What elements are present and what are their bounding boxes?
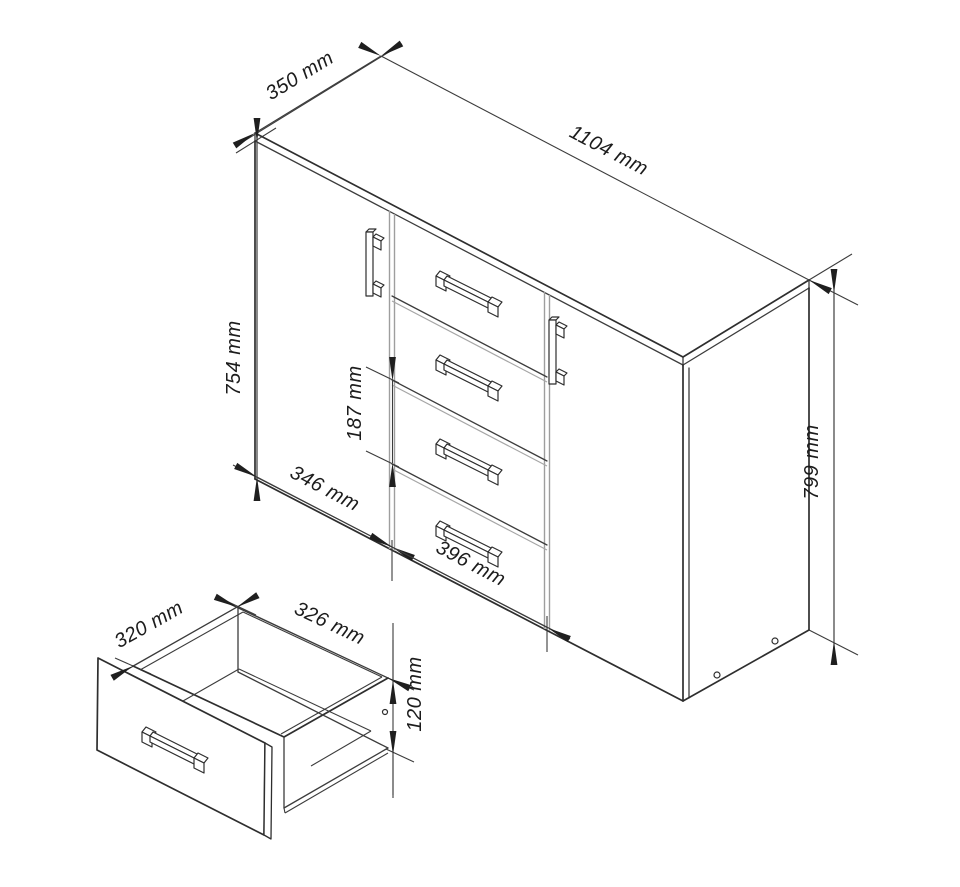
dim-label-front-height: 754 mm: [223, 320, 245, 395]
furniture-dimension-drawing: 350 mm 1104 mm 754 mm 187 mm 346 mm 396 …: [0, 0, 960, 887]
drawer-detail-view: 320 mm 326 mm 120 mm: [97, 597, 426, 839]
dim-label-inner-depth: 320 mm: [111, 597, 187, 653]
main-cabinet-view: 350 mm 1104 mm 754 mm 187 mm 346 mm 396 …: [223, 44, 858, 701]
technical-drawing-canvas: 350 mm 1104 mm 754 mm 187 mm 346 mm 396 …: [0, 0, 960, 887]
side-screw-hole: [714, 672, 720, 678]
dim-label-inner-width: 326 mm: [291, 598, 368, 650]
dim-label-drawer-front-height: 187 mm: [344, 365, 366, 440]
dim-label-detail-side-height: 120 mm: [404, 656, 426, 731]
drawer-front-panel: [97, 658, 272, 839]
drawer-side-hole: [383, 710, 388, 715]
side-screw-hole: [772, 638, 778, 644]
dim-label-side-height: 799 mm: [801, 424, 823, 499]
